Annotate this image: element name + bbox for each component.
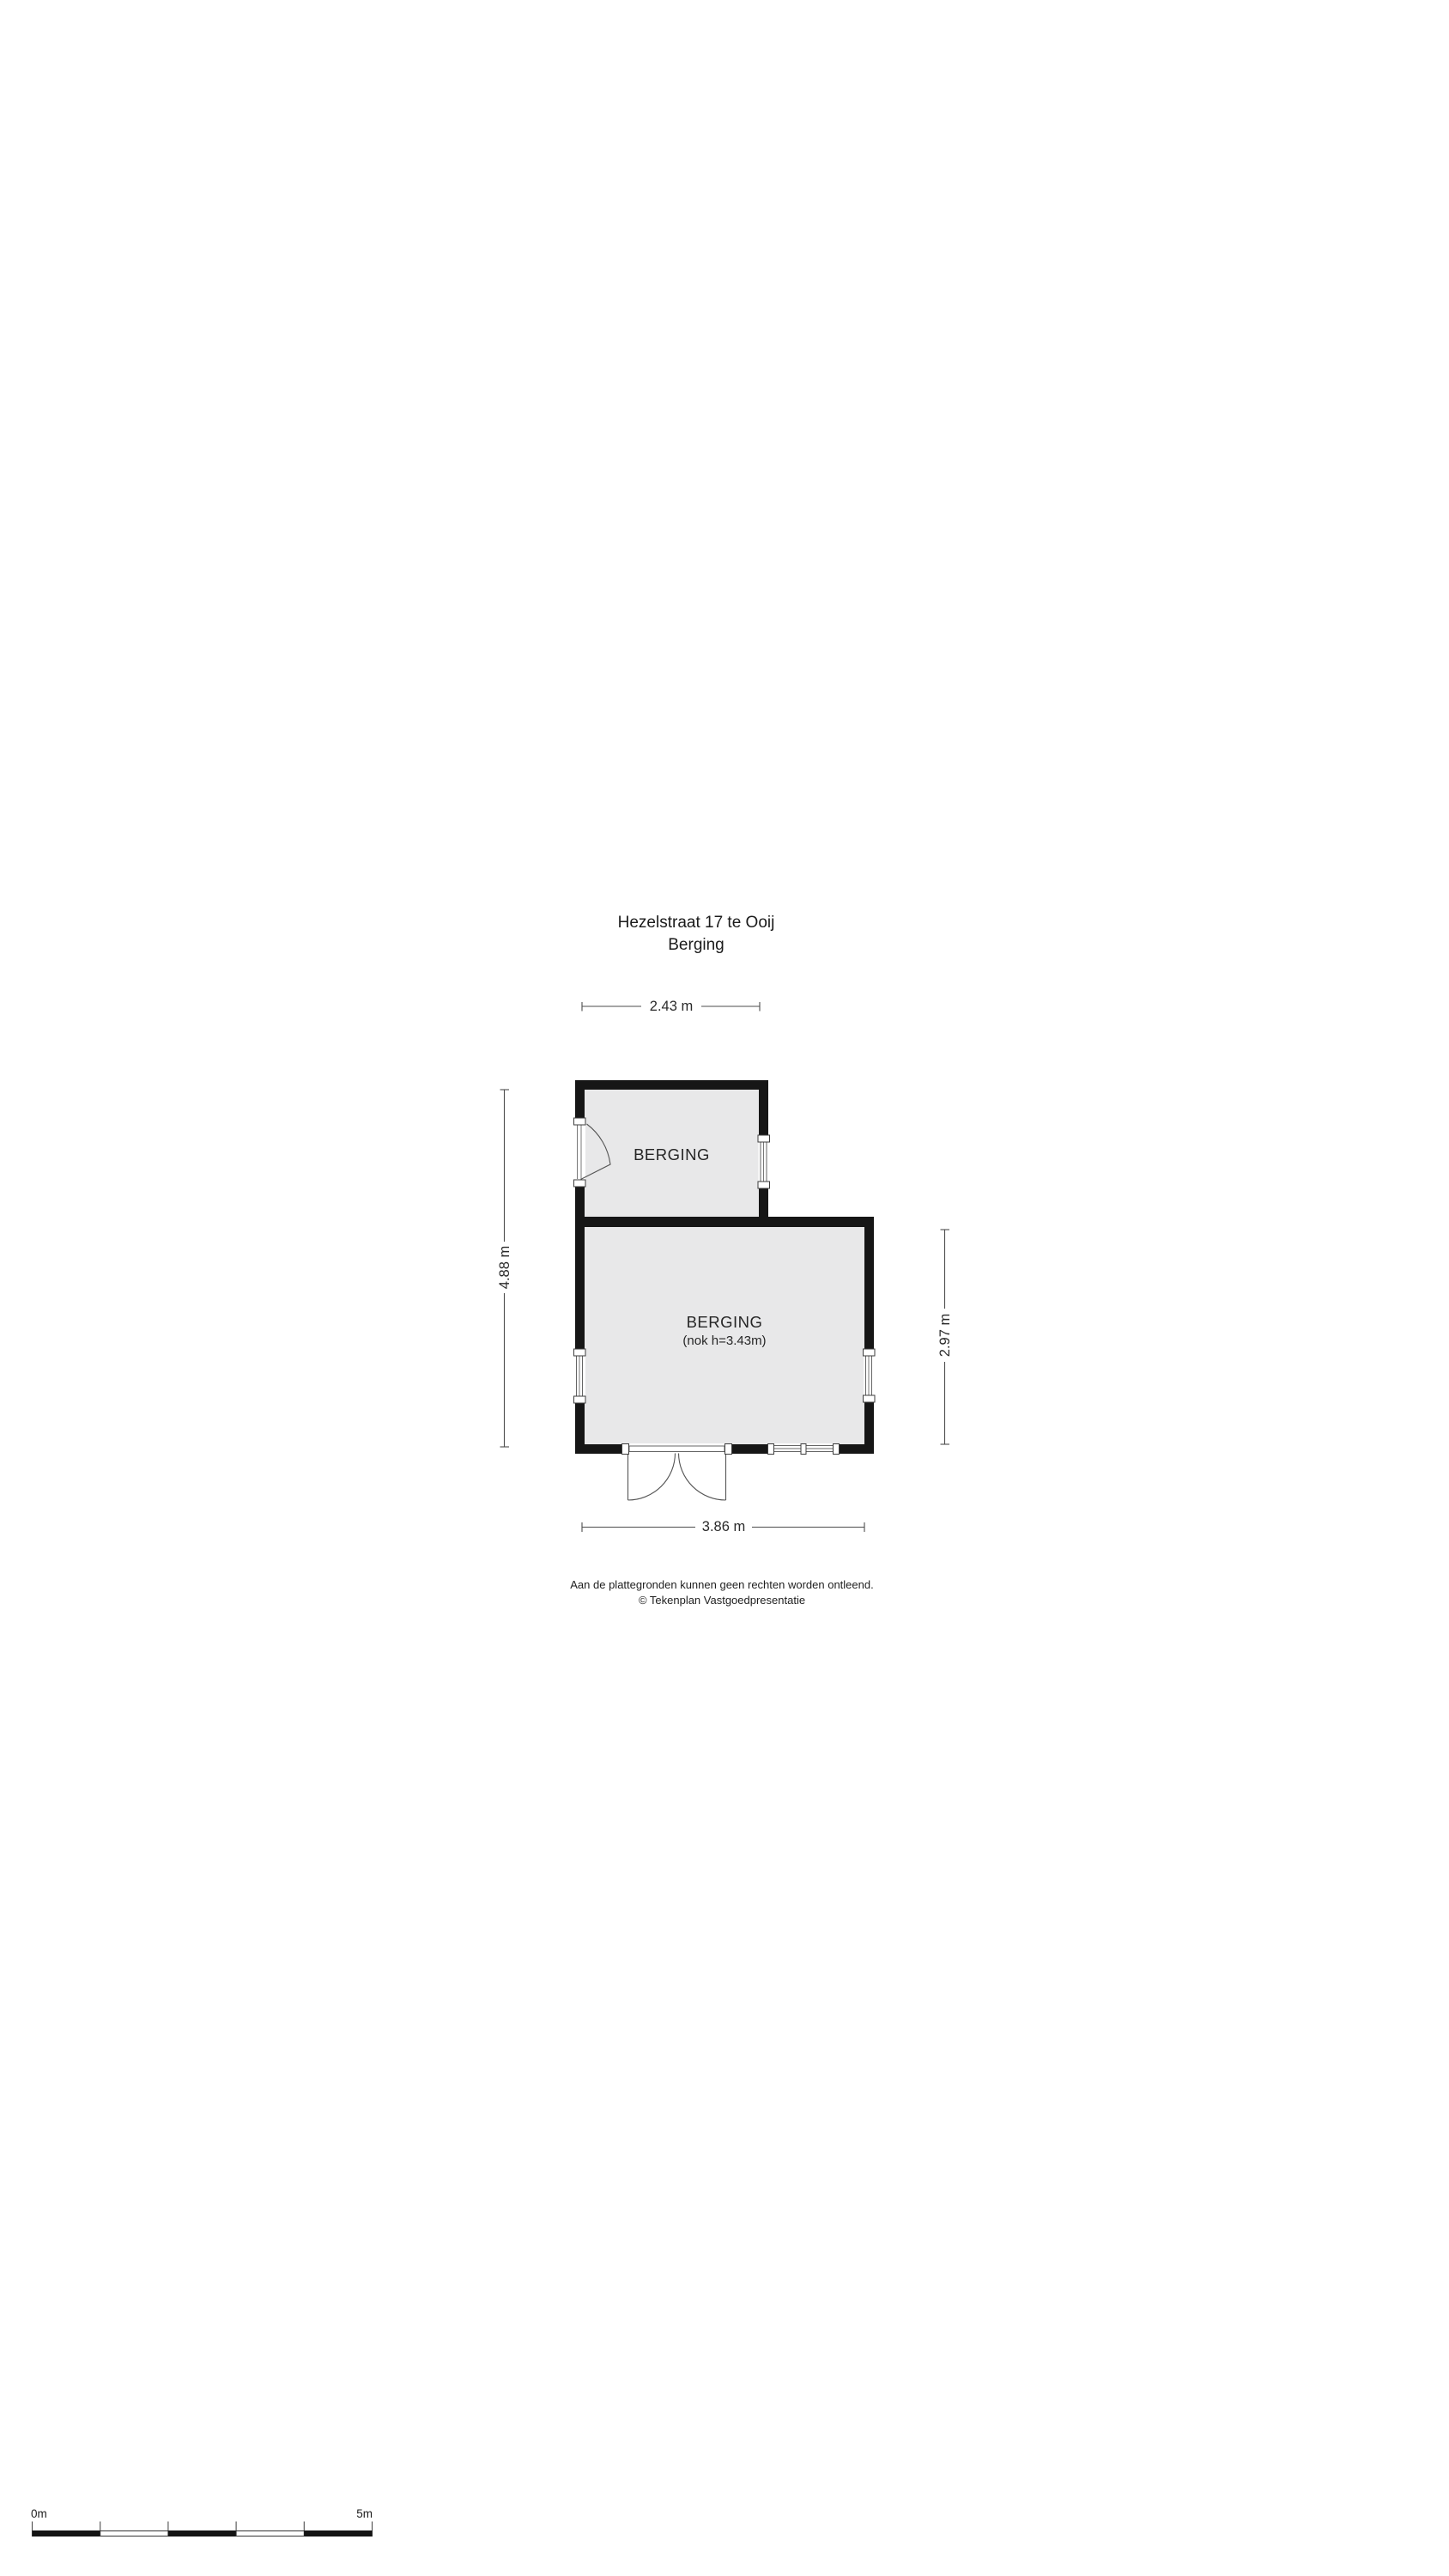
room-label-upper-berging: BERGING <box>586 1145 758 1164</box>
floor-plan-page: Hezelstraat 17 te Ooij Berging 2.43 m BE… <box>0 0 1449 2576</box>
footer-disclaimer: Aan de plattegronden kunnen geen rechten… <box>464 1577 979 1593</box>
lower-room-window-right <box>864 1349 876 1402</box>
scale-bar <box>33 2522 373 2537</box>
door-swing-arc-left <box>628 1454 676 1501</box>
dimension-label-top: 2.43 m <box>620 999 723 1015</box>
dimension-label-bottom: 3.86 m <box>672 1519 775 1535</box>
lower-room-window-left <box>574 1349 586 1403</box>
footer-copyright: © Tekenplan Vastgoedpresentatie <box>464 1593 979 1608</box>
door-swing-arc-right <box>679 1454 726 1501</box>
plan-title-address: Hezelstraat 17 te Ooij <box>482 912 911 934</box>
entrance-double-door <box>622 1443 732 1500</box>
lower-room-window-bottom <box>768 1443 840 1455</box>
dimension-label-right: 2.97 m <box>937 1284 954 1387</box>
plan-title-subtitle: Berging <box>482 934 911 957</box>
room-label-lower-berging: BERGING <box>596 1313 853 1332</box>
upper-room-window <box>758 1135 770 1188</box>
room-note-ridge-height: (nok h=3.43m) <box>596 1334 853 1348</box>
scale-bar-end-label: 5m <box>351 2508 373 2520</box>
scale-bar-start-label: 0m <box>31 2508 47 2520</box>
footer: Aan de plattegronden kunnen geen rechten… <box>464 1577 979 1607</box>
dimension-label-left: 4.88 m <box>496 1216 513 1319</box>
room-floors <box>585 1090 864 1444</box>
floor-plan-drawing <box>0 0 1449 2576</box>
plan-title: Hezelstraat 17 te Ooij Berging <box>482 912 911 957</box>
